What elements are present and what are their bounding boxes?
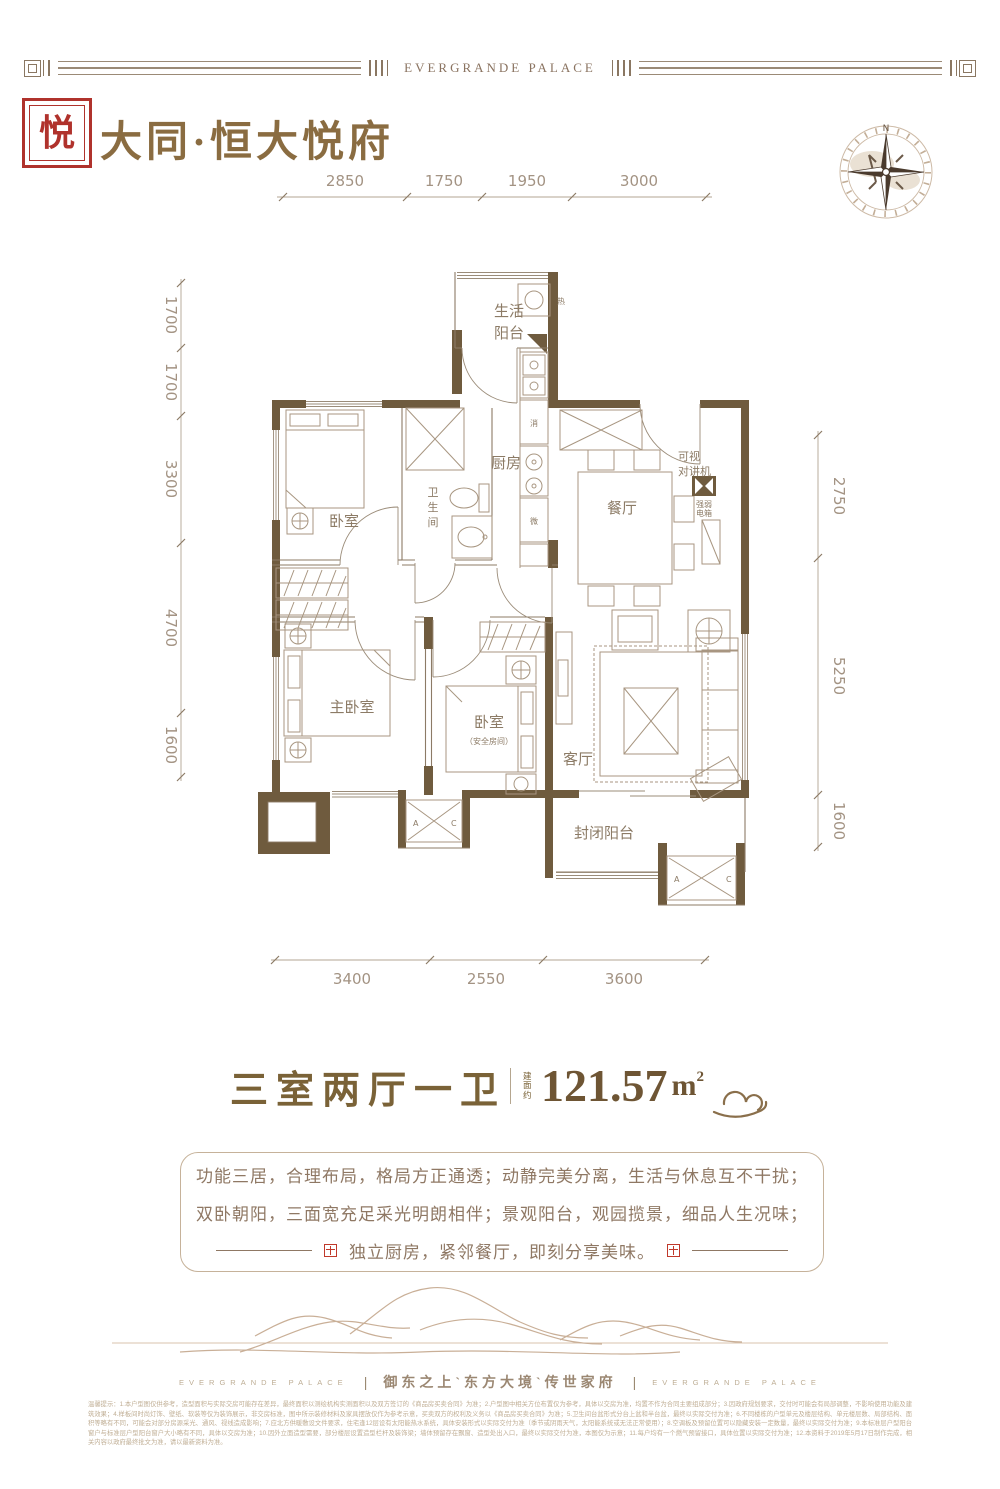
sterilizer-label: 消 xyxy=(530,418,538,428)
room-label-bedroom1: 卧室 xyxy=(329,512,359,530)
divider-line xyxy=(692,1250,788,1251)
ebox-label: 强弱 xyxy=(696,500,712,509)
footer-tagline: EVERGRANDE PALACE | 御东之上`东方大境`传世家府 | EVE… xyxy=(0,1372,1000,1392)
description-line3: 独立厨房，紧邻餐厅，即刻分享美味。 xyxy=(349,1238,655,1263)
dining-furniture xyxy=(578,450,694,606)
room-label-life-balcony: 阳台 xyxy=(494,324,524,342)
area-summary: 三室两厅一卫 建面约 121.57 m2 xyxy=(0,1048,1000,1124)
bathroom-fixtures xyxy=(406,408,492,558)
seal-stamp-left-icon xyxy=(324,1244,337,1257)
description-line3-row: 独立厨房，紧邻餐厅，即刻分享美味。 xyxy=(216,1238,788,1263)
area-value: 121.57 xyxy=(541,1063,668,1109)
dim-left: 1700 1700 3300 4700 1600 xyxy=(162,279,185,781)
master-furniture xyxy=(284,624,390,762)
dim-label: 2750 xyxy=(830,477,848,515)
room-label-life-balcony: 生活 xyxy=(494,302,524,320)
divider-line xyxy=(216,1250,312,1251)
description-box: 功能三居，合理布局，格局方正通透；动静完美分离，生活与休息互不干扰； 双卧朝阳，… xyxy=(180,1152,824,1272)
dim-label: 3600 xyxy=(605,970,643,988)
room-label-living: 客厅 xyxy=(563,750,593,768)
compass-north-label: N xyxy=(883,124,890,134)
dim-label: 1700 xyxy=(162,363,180,401)
walls xyxy=(258,272,749,905)
cloud-ornament-icon xyxy=(708,1074,770,1124)
room-label-kitchen: 厨房 xyxy=(491,454,521,472)
seal-stamp-right-icon xyxy=(667,1244,680,1257)
microwave-label: 微 xyxy=(530,516,538,526)
description-line2: 双卧朝阳，三面宽充足采光明朗相伴；景观阳台，观园揽景，细品人生况味； xyxy=(196,1200,808,1225)
partitions xyxy=(272,272,745,905)
room-label-dining: 餐厅 xyxy=(607,499,637,517)
ac-label-c: C xyxy=(451,819,457,828)
dim-label: 2550 xyxy=(467,970,505,988)
brand-en-right: EVERGRANDE PALACE xyxy=(652,1378,821,1387)
heater-label: 热 xyxy=(557,296,565,306)
mountain-art xyxy=(112,1288,888,1354)
room-label-bath: 卫 xyxy=(428,486,439,499)
dim-bottom: 3400 2550 3600 xyxy=(271,956,709,988)
brand-en-left: EVERGRANDE PALACE xyxy=(179,1378,348,1387)
dim-label: 1700 xyxy=(162,296,180,334)
dim-label: 1750 xyxy=(425,172,463,190)
compass-icon: N xyxy=(840,124,932,218)
dim-label: 3000 xyxy=(620,172,658,190)
room-label-bath: 间 xyxy=(428,516,439,529)
room-label-bath: 生 xyxy=(428,500,439,514)
dim-label: 2850 xyxy=(326,172,364,190)
dim-label: 5250 xyxy=(830,657,848,695)
tagline-divider: | xyxy=(633,1374,637,1390)
ac-label-a: A xyxy=(413,819,419,828)
dim-label: 1600 xyxy=(162,726,180,764)
intercom-label: 对讲机 xyxy=(678,464,711,478)
layout-name: 三室两厅一卫 xyxy=(230,1059,506,1114)
windows xyxy=(274,273,748,879)
tagline-divider: | xyxy=(364,1374,368,1390)
dim-right: 2750 5250 1600 xyxy=(814,431,848,851)
dim-label: 1600 xyxy=(830,802,848,840)
dim-label: 3400 xyxy=(333,970,371,988)
intercom-label: 可视 xyxy=(678,449,700,463)
description-line1: 功能三居，合理布局，格局方正通透；动静完美分离，生活与休息互不干扰； xyxy=(196,1162,808,1187)
entry-fixtures xyxy=(692,476,720,564)
closets xyxy=(276,410,642,652)
summary-divider xyxy=(510,1068,511,1104)
tagline-cn: 御东之上`东方大境`传世家府 xyxy=(383,1372,616,1392)
room-label-bedroom2-note: （安全房间） xyxy=(465,736,513,746)
area-label: 建面约 xyxy=(523,1072,535,1101)
room-label-closed-balcony: 封闭阳台 xyxy=(574,824,634,842)
room-label-master: 主卧室 xyxy=(329,698,374,716)
living-furniture xyxy=(556,610,742,801)
dim-label: 4700 xyxy=(162,609,180,647)
ac-platforms: A C A C xyxy=(406,800,736,900)
dim-label: 3300 xyxy=(162,460,180,498)
area-unit: m2 xyxy=(672,1069,705,1103)
ebox-label: 电箱 xyxy=(696,508,712,518)
dim-top: 2850 1750 1950 3000 xyxy=(277,172,712,201)
ac-label-c: C xyxy=(726,875,732,884)
disclaimer-text: 温馨提示：1.本户型图仅供参考，造型面积与实际交房可能存在差异，最终面积以测绘机… xyxy=(88,1400,912,1448)
ac-label-a: A xyxy=(674,875,680,884)
room-label-bedroom2: 卧室 xyxy=(474,713,504,731)
dim-label: 1950 xyxy=(508,172,546,190)
